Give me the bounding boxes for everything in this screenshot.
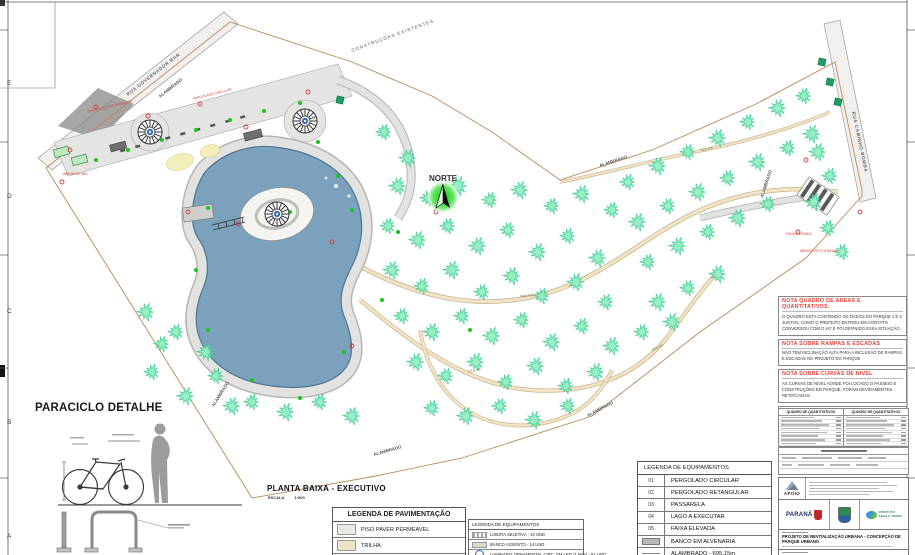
tree-icon	[177, 387, 194, 405]
equip-code: 02	[638, 487, 665, 498]
quantitative-table: QUADRO DE QUANTITATIVOS QUADRO DE QUANTI…	[778, 408, 909, 447]
tree-icon	[503, 267, 520, 285]
tree-icon	[492, 398, 507, 414]
tree-icon	[244, 394, 259, 410]
legend-equipamentos-small: LEGENDA DE EQUIPAMENTOS LIXEIRA SELETIVA…	[468, 519, 584, 555]
tree-icon	[574, 318, 589, 334]
light-pole-icon	[350, 208, 354, 212]
tree-icon	[680, 280, 695, 296]
pavement-label: PISO PAVER PERMEAVEL	[361, 527, 429, 533]
tree-icon	[560, 228, 575, 244]
tree-icon	[629, 213, 646, 231]
red-callout-label: FAIXA ELEVADA	[786, 232, 812, 236]
light-pole-icon	[396, 230, 400, 234]
light-pole-icon	[194, 268, 198, 272]
paraciclo-detail-title: PARACICLO DETALHE	[35, 402, 163, 414]
pavement-swatch	[337, 524, 356, 535]
tree-icon	[573, 185, 590, 203]
circle-swatch	[475, 550, 484, 555]
revision-row	[779, 462, 908, 469]
tree-icon	[634, 324, 649, 340]
light-pole-icon	[228, 118, 232, 122]
tree-icon	[389, 177, 406, 195]
equip-label: BANCO EM ALVENARIA	[665, 539, 735, 545]
note-box: NOTA SOBRE CURVAS DE NIVELAS CURVAS DE N…	[778, 369, 907, 403]
pavement-label: TRILHA	[361, 543, 381, 549]
apoio-logo-box: APOIO	[779, 478, 806, 499]
lake-highlight	[347, 194, 350, 197]
paraciclo-detail	[57, 424, 242, 553]
site-boundary-fence	[46, 22, 862, 498]
legend-equip-table-row: 05FAIXA ELEVADA	[638, 524, 771, 536]
grid-letter-C: C	[7, 308, 12, 315]
dashed-swatch	[472, 532, 487, 538]
tree-icon	[223, 397, 240, 415]
tree-icon	[500, 222, 515, 238]
tree-icon	[407, 353, 424, 371]
tree-icon	[154, 336, 169, 352]
light-pole-icon	[206, 206, 210, 210]
tree-icon	[343, 407, 360, 425]
apoio-logo-icon	[786, 481, 799, 490]
project-title: PROJETO DE REVITALIZAÇÃO URBANA - CONCEP…	[782, 534, 905, 544]
tree-icon	[749, 153, 766, 171]
equip-code	[638, 536, 665, 547]
apoio-text-lines	[806, 478, 908, 499]
pergola-dot	[276, 213, 278, 215]
hedge-icon	[818, 58, 826, 66]
walkway-to-crossing-fill	[700, 196, 812, 218]
tree-icon	[820, 220, 835, 236]
existing-constructions-label: CONSTRUÇÕES EXISTENTES	[350, 17, 434, 53]
tree-icon	[689, 183, 706, 201]
note-box: NOTA SOBRE RAMPAS E ESCADASNÃO TEM INCLI…	[778, 339, 907, 367]
title-block: APOIO PARANÁ INSTITUTO ÁGUA E TERRA	[778, 477, 909, 555]
field-label-bar	[782, 532, 808, 533]
legend-equipamentos-table: LEGENDA DE EQUIPAMENTOS 01PERGOLADO CIRC…	[637, 461, 772, 555]
legend-equip-table-row: 02PERGOLADO RETANGULAR	[638, 487, 771, 499]
note-box: NOTA QUADRO DE AREAS E QUANTITATIVOS:O Q…	[778, 296, 907, 336]
quant-col-1: QUADRO DE QUANTITATIVOS	[779, 409, 844, 446]
legend-equip-table-row: 01PERGOLADO CIRCULAR	[638, 475, 771, 487]
fold-mark	[0, 0, 5, 6]
trilha-paths	[352, 112, 838, 425]
sheet-title-row: PLANTA DE IMPLANTAÇÃO	[779, 550, 908, 555]
trilha-label: TRILHA	[467, 367, 481, 374]
tree-icon	[534, 288, 549, 304]
tree-icon	[527, 357, 544, 375]
tree-icon	[454, 308, 469, 324]
tree-icon	[803, 125, 820, 143]
tree-icon	[700, 224, 715, 240]
hedge-icon	[826, 78, 834, 86]
tree-icon	[640, 254, 655, 270]
revision-table	[778, 447, 909, 475]
tree-icon	[394, 308, 409, 324]
tree-icon	[680, 144, 695, 160]
scale-line: ESCALA1:500	[268, 495, 315, 500]
fold-mark	[0, 365, 5, 377]
legend-equipamentos-table-rows: 01PERGOLADO CIRCULAR02PERGOLADO RETANGUL…	[638, 475, 771, 555]
light-pole-icon	[342, 350, 346, 354]
legend-pav-row: TRILHA	[333, 538, 465, 554]
tree-icon	[620, 174, 635, 190]
grid-letter-B: B	[7, 419, 11, 426]
trilha-label: TRILHA	[699, 146, 714, 153]
red-marker-icon	[804, 158, 808, 162]
tree-icon	[809, 143, 826, 161]
quant-rows-1	[779, 416, 843, 446]
equip-label: LAGO A EXECUTAR	[665, 514, 725, 520]
tree-icon	[603, 337, 620, 355]
tree-icon	[168, 324, 183, 340]
tree-icon	[482, 192, 497, 208]
tree-icon	[796, 88, 811, 104]
tree-icon	[457, 407, 474, 425]
north-arrow: NORTE	[428, 174, 458, 212]
person-silhouette	[151, 424, 170, 504]
lake	[192, 146, 361, 387]
tree-icon	[443, 261, 460, 279]
grid-letter-D: D	[7, 193, 12, 200]
legend-equip-small-row: BANCO ASSENTO - 14 UND	[469, 540, 583, 550]
equip-label: ALAMBRADO - 695,15m	[665, 551, 735, 555]
sw-line-swatch	[642, 553, 660, 554]
hedge-icon	[336, 96, 344, 104]
apoio-section: APOIO	[779, 478, 908, 500]
legend-equip-table-row: BANCO EM ALVENARIA	[638, 536, 771, 548]
tree-icon	[769, 99, 786, 117]
pavement-swatch	[337, 540, 356, 551]
legend-equipamentos-table-title: LEGENDA DE EQUIPAMENTOS	[638, 462, 771, 475]
red-marker-icon	[858, 210, 862, 214]
tree-icon	[511, 181, 528, 199]
lake-highlight	[325, 177, 328, 180]
tree-icon	[514, 312, 529, 328]
light-pole-icon	[250, 378, 254, 382]
trilha-label: TRILHA	[651, 343, 665, 353]
tree-icon	[822, 168, 837, 184]
tree-icon	[720, 170, 735, 186]
tree-icon	[740, 114, 755, 130]
tree-icon	[598, 294, 613, 310]
red-callout-label: JARDIM DE MEL	[62, 172, 88, 176]
note-body: NÃO TEM INCLINAÇÃO ALTA PARA A INCLUSÃO …	[782, 350, 903, 362]
note-title: NOTA QUADRO DE AREAS E QUANTITATIVOS:	[782, 298, 903, 312]
project-subtitle-bar	[782, 546, 892, 548]
quant-row	[844, 442, 908, 446]
dim-text-bar	[70, 437, 84, 439]
note-body: AS CURVAS DE NIVEL AONDE FOI LOCADO O PA…	[782, 381, 903, 399]
light-pole-icon	[298, 396, 302, 400]
tree-icon	[589, 249, 606, 267]
pergola-dot	[304, 120, 306, 122]
gray-swatch	[472, 542, 487, 548]
tree-icon	[423, 323, 440, 341]
light-pole-icon	[468, 328, 472, 332]
fence-label: ALAMBRADO	[599, 154, 628, 168]
equip-code	[638, 548, 665, 555]
revision-row	[779, 455, 908, 462]
parana-gov-logo: PARANÁ	[779, 500, 830, 529]
tree-icon	[144, 364, 159, 380]
legend-equip-table-row: ALAMBRADO - 695,15m	[638, 548, 771, 555]
fence-label: ALAMBRADO	[759, 169, 773, 198]
legend-pavimentacao: LEGENDA DE PAVIMENTAÇÃO PISO PAVER PERME…	[332, 507, 466, 555]
tree-icon	[604, 202, 619, 218]
faixa-elevada-crosswalk	[797, 177, 839, 215]
tree-icon	[543, 333, 560, 351]
quant-header-2: QUADRO DE QUANTITATIVOS	[844, 409, 908, 416]
legend-equip-small-row: LUMINARIA ORNAMENTAL CIRC. EM LED (4,50m…	[469, 550, 583, 555]
tree-icon	[529, 243, 546, 261]
light-pole-icon	[262, 109, 266, 113]
equip-label: FAIXA ELEVADA	[665, 526, 715, 532]
tree-icon	[380, 218, 395, 234]
instituto-agua-terra-logo: INSTITUTO ÁGUA E TERRA	[860, 500, 908, 529]
equip-code: 05	[638, 524, 665, 535]
labels-layer: ALAMBRADOALAMBRADOALAMBRADOALAMBRADOALAM…	[62, 17, 869, 457]
equip-code: 04	[638, 512, 665, 523]
bicycle-icon	[63, 459, 144, 505]
paraciclo-rack	[57, 512, 190, 552]
scale-value: 1:500	[294, 495, 304, 500]
grid-letter-A: A	[7, 533, 11, 540]
tree-icon	[440, 218, 455, 234]
parana-label: PARANÁ	[786, 512, 812, 518]
lake-highlight	[334, 184, 338, 188]
light-pole-icon	[316, 140, 320, 144]
legend-equip-table-row: 04LAGO A EXECUTAR	[638, 512, 771, 524]
tree-icon	[780, 140, 795, 156]
light-pole-icon	[206, 328, 210, 332]
quant-col-2: QUADRO DE QUANTITATIVOS	[844, 409, 908, 446]
drawing-sheet: ALAMBRADOALAMBRADOALAMBRADOALAMBRADOALAM…	[0, 0, 915, 555]
light-pole-icon	[380, 298, 384, 302]
legend-equipamentos-small-rows: LIXEIRA SELETIVA - 10 UNDBANCO ASSENTO -…	[469, 530, 583, 555]
revision-header	[779, 448, 908, 455]
equip-label: PERGOLADO RETANGULAR	[665, 490, 749, 496]
sw-gray-swatch	[642, 538, 660, 545]
equip-label: PASSARELA	[665, 502, 705, 508]
project-title-row: PROJETO DE REVITALIZAÇÃO URBANA - CONCEP…	[779, 530, 908, 550]
scale-label: ESCALA	[268, 495, 284, 500]
grid-letter-E: E	[7, 80, 11, 87]
legend-equip-small-row: LIXEIRA SELETIVA - 10 UND	[469, 530, 583, 540]
equip-code: 01	[638, 475, 665, 486]
tree-icon	[376, 124, 391, 140]
pergolado-circular	[293, 109, 317, 133]
quant-rows-2	[844, 416, 908, 446]
tree-icon	[544, 198, 559, 214]
light-pole-icon	[126, 148, 130, 152]
fence-label: ALAMBRADO	[373, 444, 403, 457]
legend-equip-table-row: 03PASSARELA	[638, 499, 771, 511]
tree-icon	[483, 327, 500, 345]
equip-small-label: BANCO ASSENTO - 14 UND	[490, 542, 544, 547]
quant-header-1: QUADRO DE QUANTITATIVOS	[779, 409, 843, 416]
tree-icon	[660, 198, 675, 214]
apoio-label: APOIO	[784, 491, 800, 496]
municipal-crest-logo	[830, 500, 859, 529]
globe-icon	[866, 511, 877, 519]
tree-icon	[663, 313, 680, 331]
equip-label: PERGOLADO CIRCULAR	[665, 478, 739, 484]
municipal-crest-icon	[838, 507, 851, 523]
tree-icon	[277, 403, 294, 421]
plan-title: PLANTA BAIXA - EXECUTIVO	[267, 484, 386, 493]
tree-icon	[649, 293, 666, 311]
hedge-icon	[834, 98, 842, 106]
legend-pavimentacao-title: LEGENDA DE PAVIMENTAÇÃO	[333, 508, 465, 522]
tree-icon	[424, 400, 439, 416]
light-pole-icon	[194, 128, 198, 132]
field-label-bar	[782, 552, 808, 553]
pergolado-circular	[265, 202, 289, 226]
logos-row: PARANÁ INSTITUTO ÁGUA E TERRA	[779, 500, 908, 530]
tree-icon	[587, 363, 604, 381]
quant-row	[779, 442, 843, 446]
tree-icon	[409, 231, 426, 249]
tree-icon	[469, 237, 486, 255]
tree-icon	[567, 273, 584, 291]
dim-text-bar	[112, 434, 134, 436]
legend-pavimentacao-rows: PISO PAVER PERMEAVELTRILHACAMADA DE AREI…	[333, 522, 465, 555]
legend-pav-row: PISO PAVER PERMEAVEL	[333, 522, 465, 538]
tree-icon	[137, 303, 154, 321]
red-marker-icon	[60, 180, 64, 184]
parana-crest-icon	[814, 510, 822, 520]
tree-icon	[669, 237, 686, 255]
pergolado-circular	[138, 120, 162, 144]
tree-icon	[474, 284, 489, 300]
north-label: NORTE	[429, 174, 458, 183]
legend-equipamentos-small-title: LEGENDA DE EQUIPAMENTOS	[469, 520, 583, 530]
note-title: NOTA SOBRE CURVAS DE NIVEL	[782, 371, 903, 379]
red-callout-label: ABRIGO DE COLMEIAS	[800, 249, 838, 253]
light-pole-icon	[94, 158, 98, 162]
light-pole-icon	[298, 101, 302, 105]
note-title: NOTA SOBRE RAMPAS E ESCADAS	[782, 341, 903, 349]
equip-code: 03	[638, 499, 665, 510]
light-pole-icon	[336, 174, 340, 178]
pergola-dot	[149, 131, 151, 133]
equip-small-label: LIXEIRA SELETIVA - 10 UND	[490, 532, 545, 537]
instituto-line2: ÁGUA E TERRA	[879, 515, 903, 518]
note-body: O QUADRO ESTA CONTENDO OS DADOS DO PARQU…	[782, 314, 903, 332]
